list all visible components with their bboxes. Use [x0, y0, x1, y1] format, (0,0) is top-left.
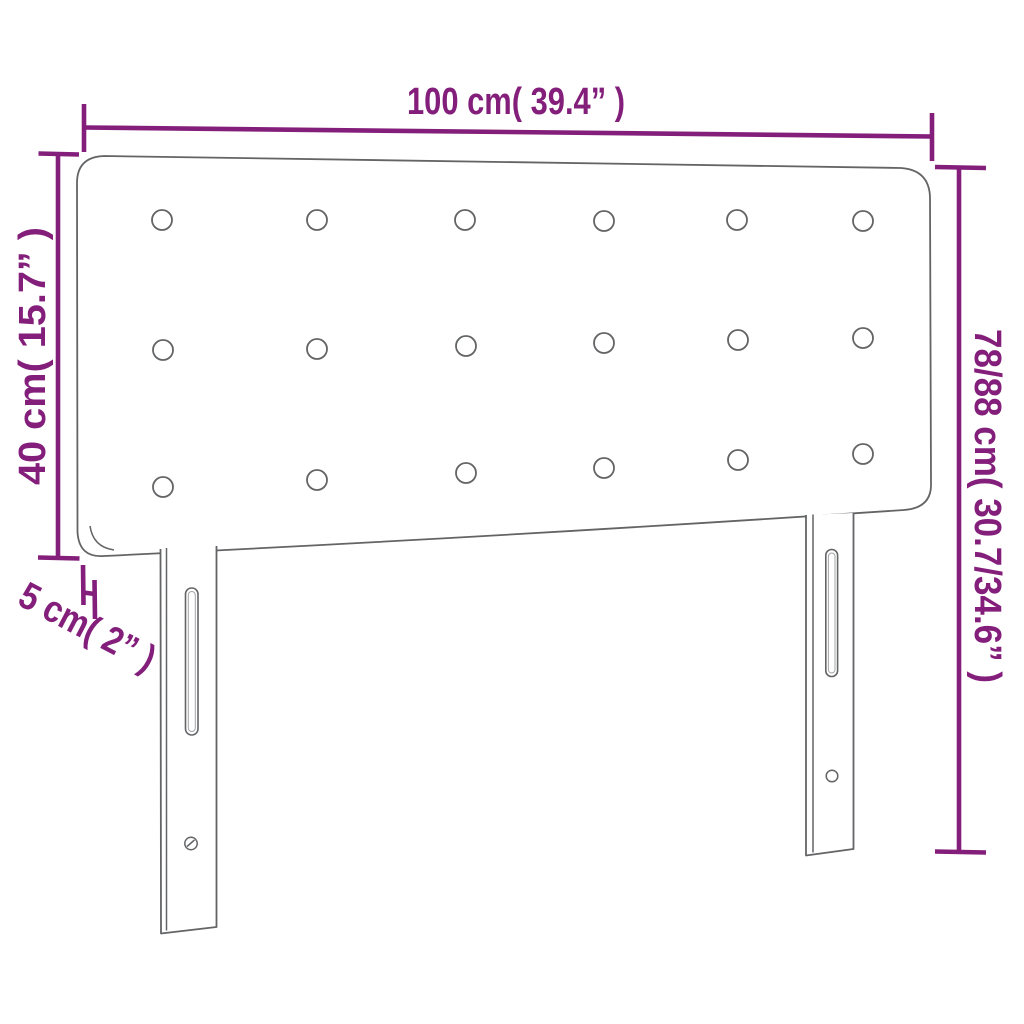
right-leg-slot: [826, 550, 838, 677]
right-height-dimension: 78/88 cm( 30.7/34.6” ): [935, 167, 1008, 853]
left-height-dimension: 40 cm( 15.7” ): [12, 154, 80, 559]
width-dimension: 100 cm( 39.4” ): [84, 81, 932, 161]
button-tuft: [456, 463, 476, 483]
width-dimension-label: 100 cm( 39.4” ): [407, 81, 625, 123]
button-tuft: [728, 330, 748, 350]
button-tuft: [728, 450, 748, 470]
button-tuft: [153, 340, 173, 360]
diagram-canvas: 100 cm( 39.4” ) 40 cm( 15.7” ) 78/88 cm(…: [0, 0, 1024, 1024]
button-tuft: [594, 333, 614, 353]
button-tuft: [853, 444, 873, 464]
thickness-dimension-connector: [83, 593, 95, 595]
button-tuft: [307, 210, 327, 230]
button-tuft: [307, 339, 327, 359]
button-tuft: [455, 210, 475, 230]
left-height-dimension-tick-top: [39, 154, 80, 155]
thickness-dimension: 5 cm( 2” ): [12, 565, 163, 680]
headboard-dimension-diagram: 100 cm( 39.4” ) 40 cm( 15.7” ) 78/88 cm(…: [0, 0, 1024, 1024]
button-tuft: [594, 458, 614, 478]
button-tuft: [853, 211, 873, 231]
thickness-dimension-tick-upper: [83, 565, 84, 605]
left-leg-slot: [186, 588, 199, 735]
button-tuft: [594, 211, 614, 231]
thickness-dimension-label: 5 cm( 2” ): [12, 575, 163, 681]
right-height-dimension-tick-bottom: [935, 852, 986, 853]
width-dimension-line: [84, 128, 932, 137]
button-tuft: [853, 328, 873, 348]
right-leg: [806, 513, 854, 856]
right-height-dimension-tick-top: [935, 167, 986, 168]
headboard-outline: [77, 156, 931, 556]
button-tuft: [456, 336, 476, 356]
left-height-dimension-label: 40 cm( 15.7” ): [12, 227, 54, 485]
button-tuft: [153, 477, 173, 497]
button-tuft: [152, 210, 172, 230]
right-height-dimension-label: 78/88 cm( 30.7/34.6” ): [966, 329, 1008, 683]
left-leg: [161, 546, 217, 934]
button-tuft: [307, 470, 327, 490]
button-tuft: [727, 210, 747, 230]
left-height-dimension-tick-bottom: [38, 558, 80, 559]
